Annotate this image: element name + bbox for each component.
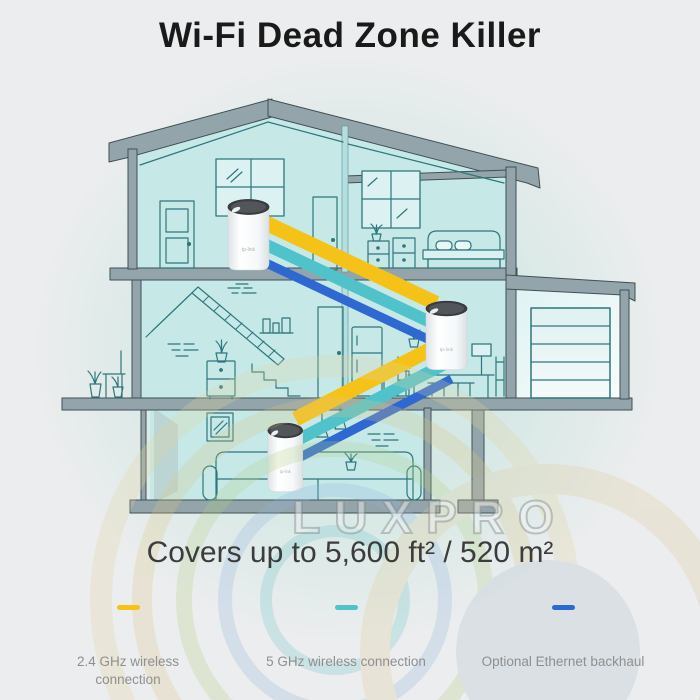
mesh-router-1 bbox=[228, 199, 269, 270]
legend-label: 5 GHz wireless connection bbox=[261, 653, 431, 671]
window-bedroom bbox=[362, 171, 420, 228]
rooms bbox=[133, 110, 622, 503]
garage-wall-right bbox=[620, 290, 629, 399]
garage-door bbox=[531, 308, 610, 398]
mesh-router-2 bbox=[426, 301, 467, 369]
mesh-router-3 bbox=[268, 423, 303, 491]
coverage-text: Covers up to 5,600 ft² / 520 m² bbox=[0, 536, 700, 570]
legend-dash bbox=[335, 605, 358, 610]
legend-item-5ghz: 5 GHz wireless connection bbox=[261, 597, 431, 671]
page: Wi-Fi Dead Zone Killer tp-link bbox=[0, 0, 700, 700]
wall-left-top bbox=[128, 149, 137, 269]
legend-dash bbox=[552, 605, 575, 610]
house-illustration: tp-link bbox=[0, 0, 700, 700]
legend-item-ethernet: Optional Ethernet backhaul bbox=[478, 597, 648, 671]
legend-label: 2.4 GHz wireless connection bbox=[43, 653, 213, 689]
legend-dash bbox=[117, 605, 140, 610]
legend-item-24ghz: 2.4 GHz wireless connection bbox=[43, 597, 213, 689]
legend-label: Optional Ethernet backhaul bbox=[478, 653, 648, 671]
wall-left-mid bbox=[132, 280, 141, 398]
